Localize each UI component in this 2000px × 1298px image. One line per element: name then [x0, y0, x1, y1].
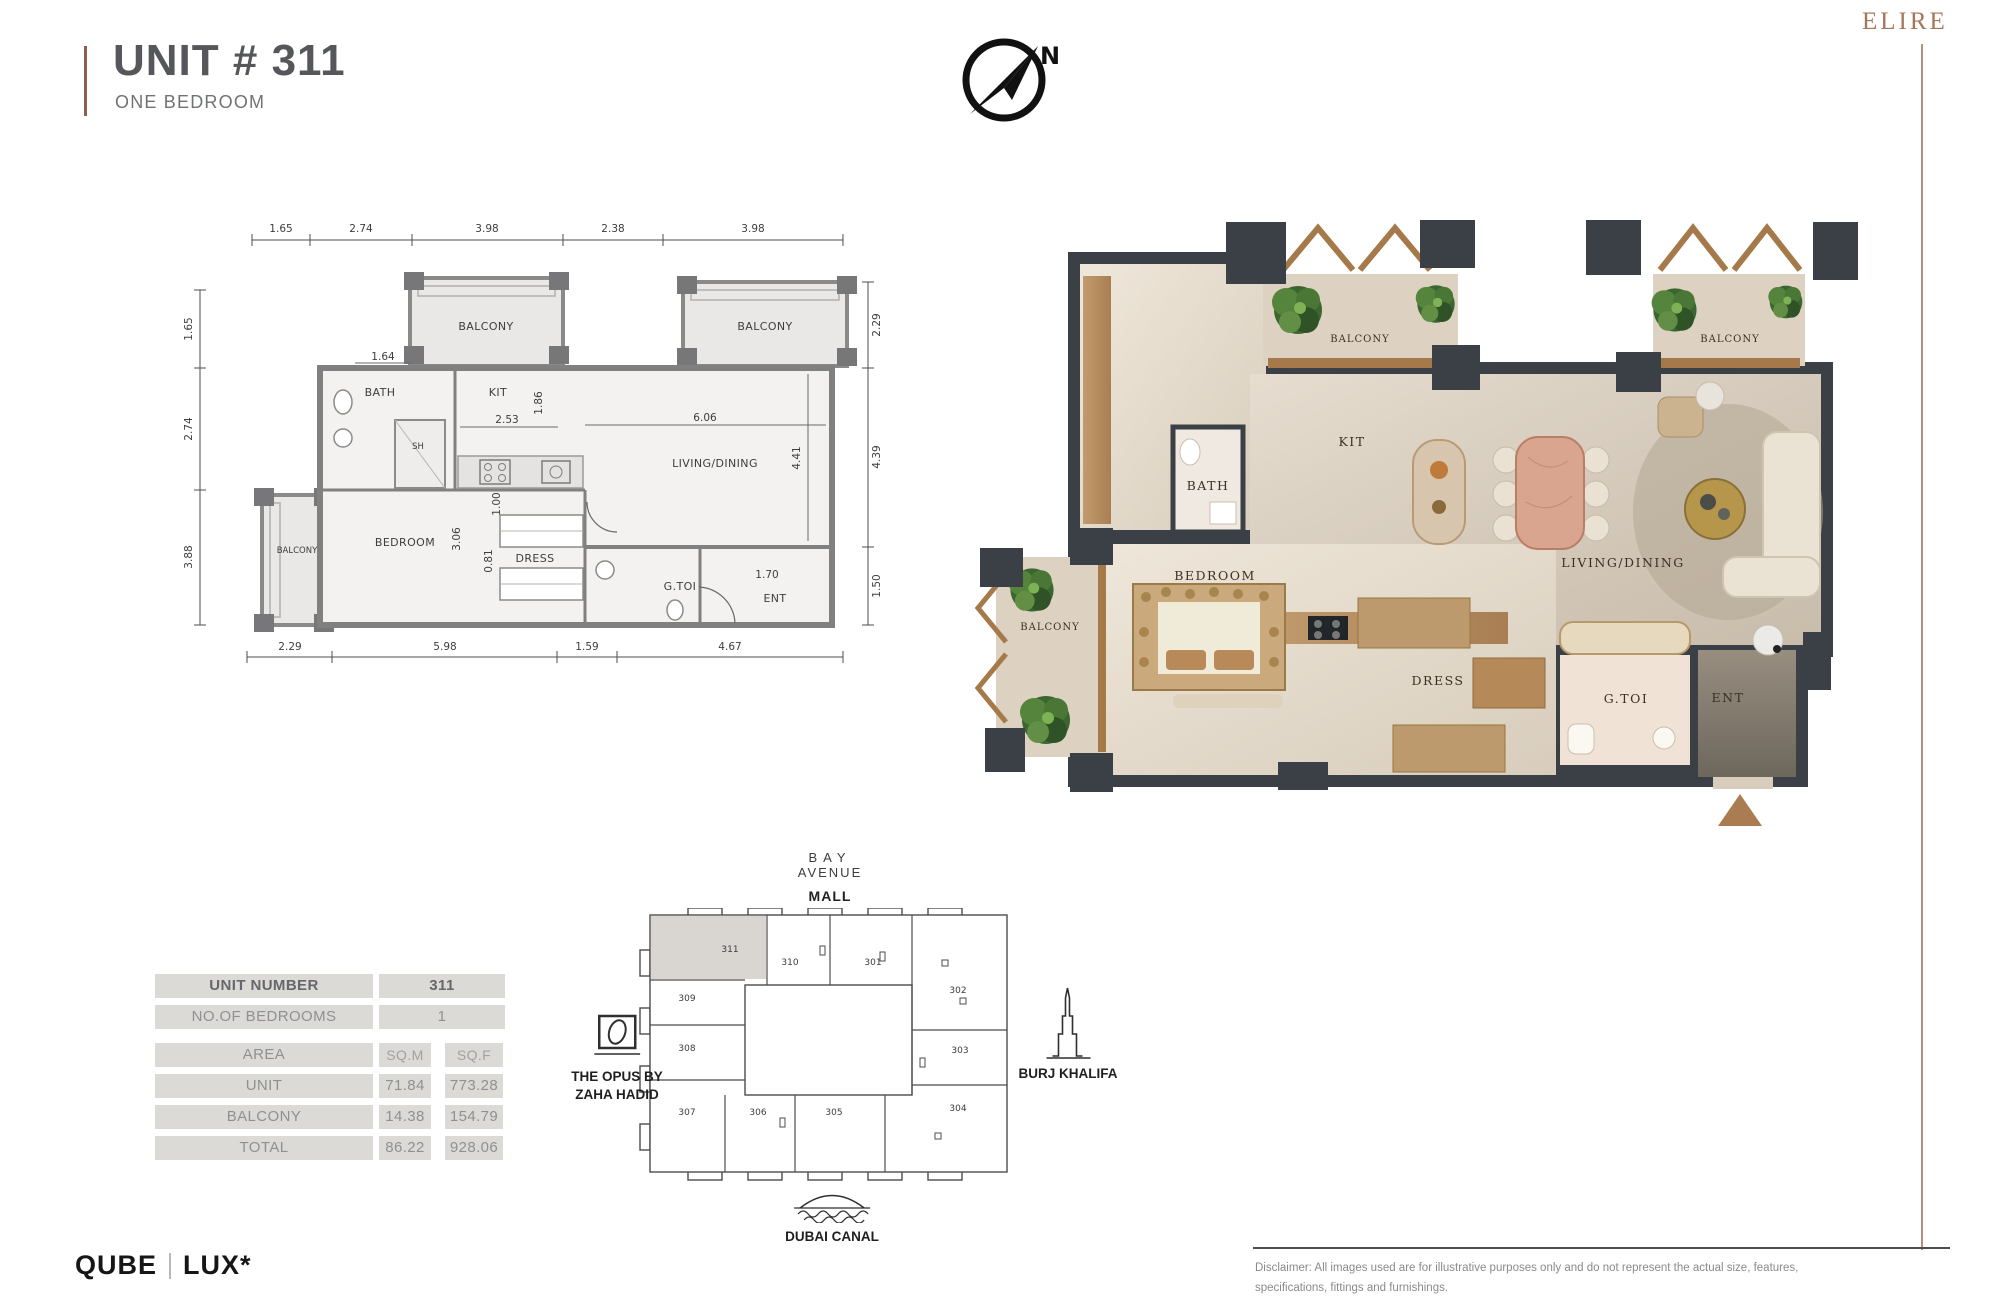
title-accent-bar	[84, 46, 87, 116]
page-title: UNIT # 311	[113, 36, 346, 86]
dim-bedroom-h: 3.06	[451, 527, 463, 551]
entrance-arrow	[1718, 794, 1762, 826]
row-col2: 154.79	[445, 1105, 503, 1129]
table-row: TOTAL 86.22 928.06	[155, 1136, 505, 1160]
table-row: AREA SQ.M SQ.F	[155, 1043, 505, 1067]
key-unit-309: 309	[678, 994, 695, 1004]
plan-dims-left	[194, 290, 206, 625]
dim-left-0: 1.65	[183, 317, 195, 340]
dim-bottom-1: 5.98	[433, 641, 456, 653]
dim-living-w: 6.06	[693, 412, 717, 424]
dim-ent-w: 1.70	[755, 569, 778, 581]
dim-top-1: 2.74	[349, 223, 373, 235]
render-label-living: LIVING/DINING	[1561, 555, 1685, 570]
dim-kit-w: 2.53	[495, 414, 518, 426]
render-dining-set	[1493, 437, 1609, 549]
logo-qube: QUBE	[75, 1250, 157, 1281]
logo-divider	[169, 1253, 171, 1279]
plan-label-bath: BATH	[365, 386, 396, 399]
row-label: BALCONY	[155, 1105, 373, 1129]
dim-kit-h: 1.86	[533, 391, 545, 415]
table-row: NO.OF BEDROOMS 1	[155, 1005, 505, 1029]
row-value: 311	[379, 974, 505, 998]
opus-line1: THE OPUS BY	[571, 1068, 663, 1086]
render-label-ent: ENT	[1712, 690, 1745, 705]
disclaimer-text: Disclaimer: All images used are for illu…	[1255, 1258, 1935, 1298]
brochure-page: UNIT # 311 ONE BEDROOM ELIRE N BALCONY B…	[0, 0, 2000, 1298]
plan-label-balcony-left: BALCONY	[277, 546, 318, 556]
opus-line2: ZAHA HADID	[571, 1086, 663, 1104]
key-unit-308: 308	[678, 1044, 695, 1054]
plan-label-ent: ENT	[763, 592, 786, 605]
plan-label-kitchen: KIT	[489, 386, 507, 399]
dim-top-3: 2.38	[601, 223, 624, 235]
plan-label-shower: SH	[412, 442, 424, 452]
row-col2: 928.06	[445, 1136, 503, 1160]
dim-bottom-0: 2.29	[278, 641, 301, 653]
brand-logo: ELIRE	[1862, 8, 1948, 36]
key-unit-303: 303	[951, 1046, 968, 1056]
dim-right-1: 4.39	[871, 445, 883, 468]
plan-label-gtoi: G.TOI	[664, 580, 697, 593]
render-label-bedroom: BEDROOM	[1174, 568, 1256, 583]
plan-dims-top	[252, 234, 843, 246]
row-col1: 86.22	[379, 1136, 431, 1160]
dim-left-2: 3.88	[183, 545, 195, 568]
plan-label-dress: DRESS	[515, 552, 554, 565]
render-label-balcony-bedroom: BALCONY	[1020, 622, 1079, 633]
table-row: BALCONY 14.38 154.79	[155, 1105, 505, 1129]
plan-balcony-top-right: BALCONY	[677, 276, 857, 366]
landmark-opus: THE OPUS BY ZAHA HADID	[571, 1014, 663, 1104]
row-label: UNIT	[155, 1074, 373, 1098]
render-label-kitchen: KIT	[1338, 434, 1365, 449]
dubai-canal-icon	[790, 1183, 874, 1223]
plan-dims-bottom	[247, 651, 843, 663]
canal-label: DUBAI CANAL	[785, 1229, 879, 1244]
dim-top-0: 1.65	[269, 223, 292, 235]
render-floor-plan: BALCONY BALCONY BALCONY KIT BATH BEDROOM…	[968, 212, 1868, 842]
row-label: TOTAL	[155, 1136, 373, 1160]
key-unit-304: 304	[949, 1104, 966, 1114]
dim-right-2: 1.50	[871, 574, 883, 597]
burj-khalifa-icon	[1046, 986, 1090, 1062]
page-subtitle: ONE BEDROOM	[115, 92, 265, 113]
landmark-bay-avenue-mall: BAY AVENUE MALL	[798, 850, 863, 904]
plan-label-living: LIVING/DINING	[672, 457, 758, 470]
mall-line2: AVENUE	[798, 865, 863, 880]
key-unit-307: 307	[678, 1108, 695, 1118]
render-label-balcony-living: BALCONY	[1700, 334, 1759, 345]
key-unit-306: 306	[749, 1108, 766, 1118]
disclaimer-rule	[1253, 1247, 1950, 1249]
dim-right-0: 2.29	[871, 313, 883, 336]
plan-label-bedroom: BEDROOM	[375, 536, 435, 549]
row-label: AREA	[155, 1043, 373, 1067]
unit-info-table: UNIT NUMBER 311 NO.OF BEDROOMS 1 AREA SQ…	[155, 974, 505, 1167]
render-label-dress: DRESS	[1412, 673, 1465, 688]
logo-lux: LUX*	[183, 1250, 252, 1281]
landmark-burj: BURJ KHALIFA	[1018, 986, 1117, 1081]
table-row: UNIT 71.84 773.28	[155, 1074, 505, 1098]
right-decorative-rule	[1921, 44, 1923, 1250]
render-label-bath: BATH	[1187, 478, 1230, 493]
plan-label-balcony-top-left: BALCONY	[458, 320, 513, 333]
render-bed	[1133, 584, 1285, 708]
landmark-canal: DUBAI CANAL	[785, 1183, 879, 1244]
dim-pass: 1.00	[491, 492, 503, 515]
row-value: 1	[379, 1005, 505, 1029]
row-col1: SQ.M	[379, 1043, 431, 1067]
row-col2: 773.28	[445, 1074, 503, 1098]
mall-line3: MALL	[798, 888, 863, 904]
render-entrance-threshold	[1713, 777, 1773, 789]
render-balcony-living	[1652, 228, 1805, 368]
compass-north-label: N	[1040, 42, 1060, 70]
technical-floor-plan: BALCONY BALCONY BALCONY	[150, 170, 890, 680]
opus-icon	[594, 1014, 640, 1060]
disclaimer-line1: Disclaimer: All images used are for illu…	[1255, 1258, 1935, 1278]
dim-living-h: 4.41	[791, 446, 803, 469]
footer-logos: QUBE LUX*	[75, 1250, 252, 1281]
dim-bottom-3: 4.67	[718, 641, 741, 653]
plan-balcony-top-left: BALCONY	[404, 272, 569, 366]
row-col2: SQ.F	[445, 1043, 503, 1067]
disclaimer-line2: specifications, fittings and furnishings…	[1255, 1278, 1935, 1298]
plan-label-balcony-top-right: BALCONY	[737, 320, 792, 333]
dim-top-4: 3.98	[741, 223, 764, 235]
row-col1: 14.38	[379, 1105, 431, 1129]
render-ent-floor	[1698, 650, 1796, 777]
row-label: NO.OF BEDROOMS	[155, 1005, 373, 1029]
dim-top-2: 3.98	[475, 223, 498, 235]
render-hall-wardrobe	[1083, 276, 1111, 524]
key-unit-302: 302	[949, 986, 966, 996]
render-label-gtoi: G.TOI	[1604, 691, 1649, 706]
render-label-balcony-kitchen: BALCONY	[1330, 334, 1389, 345]
key-unit-301: 301	[864, 958, 881, 968]
plan-kitchen-counter	[458, 456, 583, 488]
key-unit-311: 311	[721, 945, 738, 955]
key-plan-highlighted-unit	[651, 916, 766, 979]
row-col1: 71.84	[379, 1074, 431, 1098]
key-unit-305: 305	[825, 1108, 842, 1118]
compass-icon: N	[948, 26, 1078, 136]
dim-left-1: 2.74	[183, 417, 195, 441]
row-label: UNIT NUMBER	[155, 974, 373, 998]
mall-line1: BAY	[798, 850, 863, 865]
dim-bath: 1.64	[371, 351, 395, 363]
dim-bottom-2: 1.59	[575, 641, 598, 653]
burj-label: BURJ KHALIFA	[1018, 1066, 1117, 1081]
table-row: UNIT NUMBER 311	[155, 974, 505, 998]
key-unit-310: 310	[781, 958, 798, 968]
dim-dress-h: 0.81	[483, 549, 495, 572]
key-plan: 311 310 301 302 309 308 303 307 306 305 …	[630, 908, 1050, 1182]
